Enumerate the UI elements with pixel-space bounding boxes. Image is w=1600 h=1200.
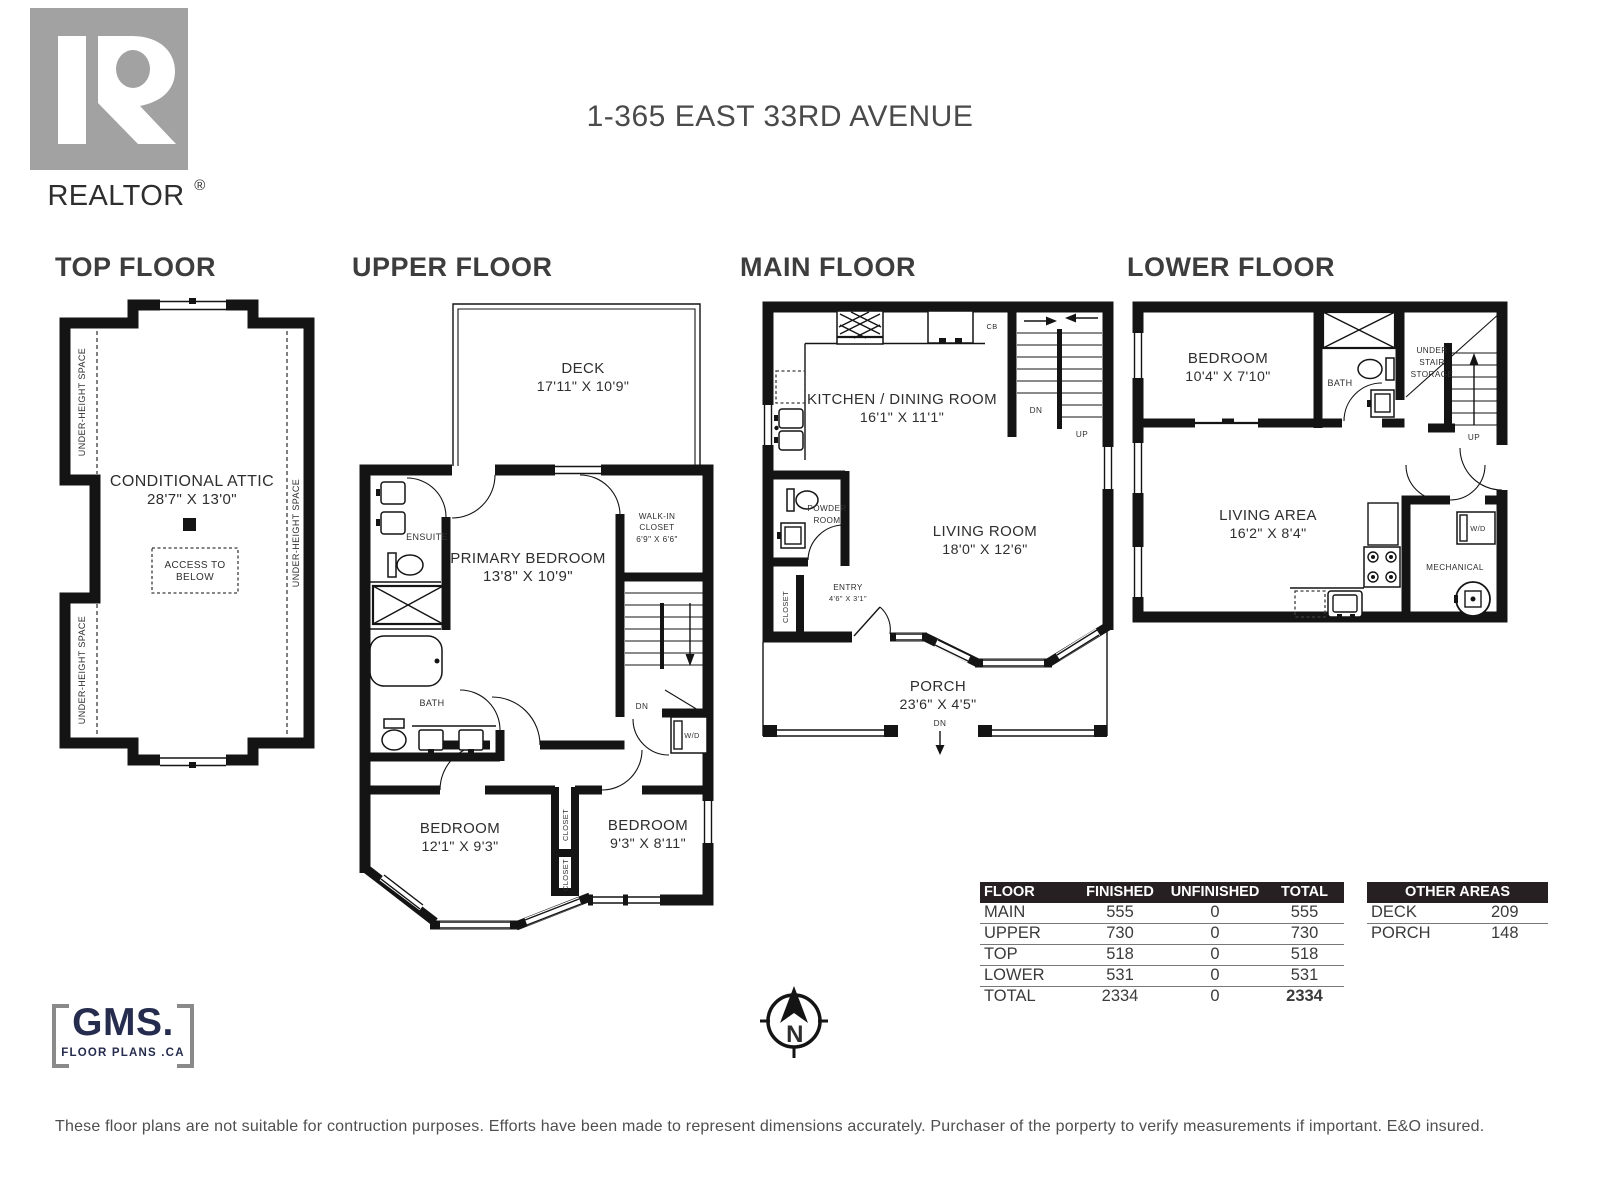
closet-label-2: CLOSET — [561, 859, 570, 891]
cell: 730 — [1075, 924, 1165, 944]
room-label-mechanical: MECHANICAL — [1426, 563, 1484, 572]
stairs-up-label-lower: UP — [1468, 433, 1480, 442]
main-floor-plan: KITCHEN / DINING ROOM 16'1" X 11'1" CB D… — [730, 285, 1120, 755]
cell: 0 — [1165, 903, 1265, 923]
cell: TOTAL — [980, 987, 1075, 1007]
room-dims-walkin: 6'9" X 6'6" — [636, 535, 678, 544]
realtor-logo-text: REALTOR — [47, 180, 184, 212]
room-dims-bedroom2: 9'3" X 8'11" — [610, 836, 686, 852]
top-floor-walls — [65, 305, 309, 760]
realtor-logo: REALTOR ® — [28, 8, 213, 213]
cell: LOWER — [980, 966, 1075, 986]
room-label-powder-2: ROOM — [813, 516, 840, 525]
cell: 555 — [1075, 903, 1165, 923]
cell: 730 — [1265, 924, 1344, 944]
upper-floor-title: UPPER FLOOR — [352, 252, 553, 283]
ensuite-fixtures — [370, 482, 443, 686]
bath-fixtures — [382, 719, 496, 753]
lower-floor-windows — [1131, 333, 1145, 597]
room-label-bedroom2: BEDROOM — [608, 817, 688, 834]
col-header-floor: FLOOR — [980, 882, 1075, 903]
cell: DECK — [1367, 903, 1487, 923]
cell: 0 — [1165, 945, 1265, 965]
kitchen-fixtures — [774, 311, 985, 460]
compass-north-label: N — [786, 1021, 804, 1048]
top-floor-title: TOP FLOOR — [55, 252, 216, 283]
closet-label-1: CLOSET — [561, 809, 570, 841]
room-label-porch: PORCH — [910, 678, 966, 695]
under-height-label-1: UNDER-HEIGHT SPACE — [77, 348, 87, 456]
room-dims-bedroom1: 12'1" X 9'3" — [421, 839, 498, 855]
cell: 555 — [1265, 903, 1344, 923]
closet-label-main: CLOSET — [781, 591, 790, 623]
lower-stairs — [1406, 313, 1500, 425]
lower-floor-plan: BEDROOM 10'4" X 7'10" BATH UNDER STAIR S… — [1110, 285, 1530, 635]
gms-logo-tagline: FLOOR PLANS .CA — [52, 1047, 194, 1059]
room-dims-entry: 4'6" X 3'1" — [829, 594, 867, 603]
powder-room-fixtures — [777, 489, 818, 548]
col-header-total: TOTAL — [1265, 882, 1344, 903]
realtor-registered-mark: ® — [194, 177, 205, 194]
room-label-primary-bedroom: PRIMARY BEDROOM — [450, 550, 605, 567]
access-below-label-1: ACCESS TO — [164, 560, 225, 571]
room-dims-living-area: 16'2" X 8'4" — [1229, 526, 1306, 542]
room-label-living-area: LIVING AREA — [1219, 507, 1317, 524]
room-dims-conditional-attic: 28'7" X 13'0" — [147, 491, 237, 508]
room-dims-bedroom-lower: 10'4" X 7'10" — [1185, 369, 1270, 385]
room-label-kitchen: KITCHEN / DINING ROOM — [807, 391, 997, 408]
room-label-powder-1: POWDER — [807, 504, 846, 513]
room-label-bedroom-lower: BEDROOM — [1188, 350, 1268, 367]
room-dims-kitchen: 16'1" X 11'1" — [860, 410, 944, 426]
cb-label: CB — [986, 322, 997, 331]
under-height-label-2: UNDER-HEIGHT SPACE — [77, 616, 87, 724]
cell: 518 — [1265, 945, 1344, 965]
floor-area-table: FLOOR FINISHED UNFINISHED TOTAL MAIN 555… — [980, 882, 1344, 1007]
top-floor-windows — [160, 298, 226, 768]
cell: 531 — [1265, 966, 1344, 986]
cell: UPPER — [980, 924, 1075, 944]
upper-floor-plan: DECK 17'11" X 10'9" — [340, 285, 720, 945]
cell: 2334 — [1075, 987, 1165, 1007]
cell: 531 — [1075, 966, 1165, 986]
disclaimer-text: These floor plans are not suitable for c… — [55, 1118, 1555, 1136]
wd-label-upper: W/D — [684, 731, 700, 740]
cell: 518 — [1075, 945, 1165, 965]
table-row: MAIN 555 0 555 — [980, 903, 1344, 924]
room-label-walkin-1: WALK-IN — [639, 512, 676, 521]
gms-logo-name: GMS. — [52, 1001, 194, 1045]
gms-floorplans-logo: GMS. FLOOR PLANS .CA — [52, 1000, 194, 1074]
attic-access-marker — [183, 518, 196, 531]
floor-area-table-header: FLOOR FINISHED UNFINISHED TOTAL — [980, 882, 1344, 903]
compass-icon: N — [760, 982, 830, 1062]
access-below-label-2: BELOW — [176, 572, 214, 583]
room-dims-primary-bedroom: 13'8" X 10'9" — [483, 568, 573, 585]
col-header-finished: FINISHED — [1075, 882, 1165, 903]
top-floor-plan: CONDITIONAL ATTIC 28'7" X 13'0" ACCESS T… — [40, 285, 340, 785]
room-dims-deck: 17'11" X 10'9" — [537, 379, 630, 395]
room-dims-porch: 23'6" X 4'5" — [899, 697, 976, 713]
other-areas-header: OTHER AREAS — [1367, 882, 1548, 903]
other-areas-table: OTHER AREAS DECK 209 PORCH 148 — [1367, 882, 1548, 944]
cell-total: 2334 — [1265, 987, 1344, 1007]
cell: 209 — [1487, 903, 1548, 923]
room-label-bath-upper: BATH — [420, 698, 445, 708]
room-label-ensuite: ENSUITE — [406, 532, 448, 542]
lower-bath-fixtures — [1323, 312, 1395, 417]
room-label-bedroom1: BEDROOM — [420, 820, 500, 837]
north-arrow-icon — [780, 986, 808, 1023]
cell: 0 — [1165, 987, 1265, 1007]
cell: 0 — [1165, 924, 1265, 944]
under-height-dashed-lines — [97, 331, 287, 736]
stairs-dn-label-upper: DN — [636, 702, 649, 711]
cell: MAIN — [980, 903, 1075, 923]
table-row: TOP 518 0 518 — [980, 945, 1344, 966]
room-label-walkin-2: CLOSET — [639, 523, 674, 532]
cell: TOP — [980, 945, 1075, 965]
cell: 0 — [1165, 966, 1265, 986]
col-header-unfinished: UNFINISHED — [1165, 882, 1265, 903]
cell: PORCH — [1367, 924, 1487, 944]
porch-dn-label: DN — [934, 719, 947, 728]
room-label-living: LIVING ROOM — [933, 523, 1037, 540]
floor-plan-page: REALTOR ® 1-365 EAST 33RD AVENUE TOP FLO… — [0, 0, 1600, 1200]
storage-label-2: STAIR — [1419, 358, 1445, 367]
room-dims-living: 18'0" X 12'6" — [942, 542, 1027, 558]
table-row: LOWER 531 0 531 — [980, 966, 1344, 987]
storage-label-3: STORAGE — [1411, 370, 1454, 379]
table-row-total: TOTAL 2334 0 2334 — [980, 987, 1344, 1007]
main-floor-title: MAIN FLOOR — [740, 252, 916, 283]
table-row: UPPER 730 0 730 — [980, 924, 1344, 945]
stairs-dn-label-main: DN — [1030, 406, 1043, 415]
page-title: 1-365 EAST 33RD AVENUE — [560, 100, 1000, 134]
table-row: PORCH 148 — [1367, 924, 1548, 944]
room-label-conditional-attic: CONDITIONAL ATTIC — [110, 473, 274, 490]
storage-label-1: UNDER — [1416, 346, 1447, 355]
room-label-bath-lower: BATH — [1328, 378, 1353, 388]
table-row: DECK 209 — [1367, 903, 1548, 924]
lower-floor-title: LOWER FLOOR — [1127, 252, 1335, 283]
room-label-entry: ENTRY — [833, 583, 863, 592]
stairs-up-label-main: UP — [1076, 430, 1088, 439]
wd-label-lower: W/D — [1470, 524, 1486, 533]
room-label-deck: DECK — [561, 360, 604, 377]
cell: 148 — [1487, 924, 1548, 944]
under-height-label-3: UNDER-HEIGHT SPACE — [291, 479, 301, 587]
upper-stairs — [625, 593, 703, 713]
